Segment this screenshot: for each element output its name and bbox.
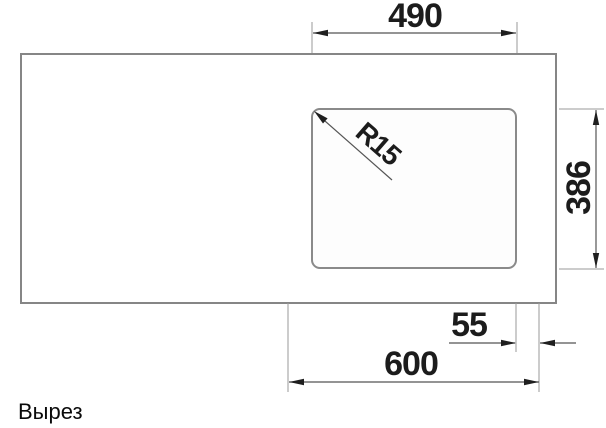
arrowhead-386-bottom	[593, 253, 599, 268]
arrowhead-490-left	[313, 30, 328, 36]
cutout-outline	[312, 109, 516, 268]
technical-drawing-cutout: 490 R15 386 55 600 Вырез	[0, 0, 606, 428]
drawing-canvas	[0, 0, 606, 428]
arrowhead-55-left	[501, 340, 516, 346]
dimension-label-edge-offset: 55	[451, 308, 487, 342]
drawing-caption: Вырез	[18, 401, 83, 423]
dimension-label-cabinet-width: 600	[384, 347, 438, 381]
arrowhead-55-right	[540, 340, 555, 346]
arrowhead-600-right	[524, 379, 539, 385]
arrowhead-600-left	[289, 379, 304, 385]
dimension-label-cutout-height: 386	[562, 161, 596, 215]
dimension-label-cutout-width: 490	[388, 0, 442, 33]
arrowhead-490-right	[501, 30, 516, 36]
arrowhead-386-top	[593, 110, 599, 125]
